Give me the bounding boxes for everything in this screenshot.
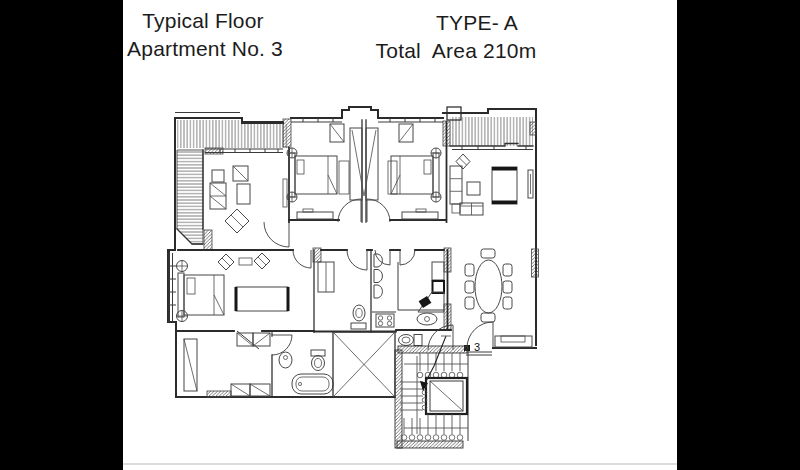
bedroom1-furniture <box>287 124 349 219</box>
wardrobe-divider <box>350 128 378 200</box>
bathroom1-fixtures <box>318 262 366 329</box>
master-bedroom-furniture <box>177 253 290 322</box>
terrace-top-left <box>175 113 288 245</box>
light-shaft <box>333 332 395 397</box>
drawing-sheet: Typical Floor Apartment No. 3 TYPE- A To… <box>123 0 677 470</box>
screenshot-stage: Typical Floor Apartment No. 3 TYPE- A To… <box>0 0 800 470</box>
apartment-entrance-number: 3 <box>474 341 480 353</box>
sitting-room-furniture <box>210 166 287 233</box>
corridor-toilet <box>399 335 423 346</box>
stair-core <box>395 336 468 448</box>
floor-plan-drawing: 3 <box>123 0 677 470</box>
bedroom2-furniture <box>388 124 441 219</box>
bathroom2-fixtures <box>279 350 333 394</box>
dressing-room-furniture <box>184 333 270 396</box>
bottom-divider-rule <box>123 463 677 465</box>
wc-fixtures <box>374 254 394 327</box>
dining-set <box>465 249 532 347</box>
kitchen-fixtures <box>417 262 444 325</box>
living-room-furniture <box>450 154 533 215</box>
